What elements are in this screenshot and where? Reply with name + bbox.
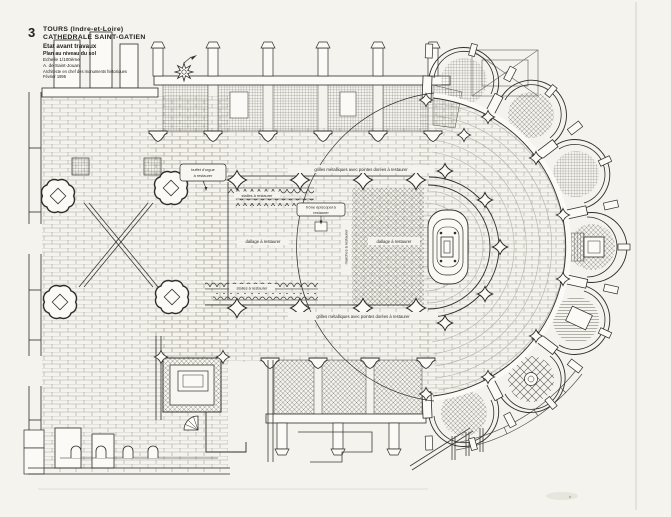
chapel-altar (340, 92, 356, 116)
crossing-pier (42, 180, 75, 213)
sanctuary-floor (352, 188, 424, 306)
axial-chapel-steps (570, 233, 584, 261)
north-chapel-bays (163, 85, 462, 131)
crossing-pier (156, 281, 189, 314)
floor-grating (72, 158, 89, 175)
title-line-monument: CATHEDRALE SAINT-GATIEN (43, 34, 146, 42)
label-paving-choir: dallage à restaurer (246, 239, 282, 244)
label-throne-line1: trône épiscopal à (306, 205, 336, 210)
high-altar (428, 210, 468, 284)
south-chapel-bays (274, 360, 422, 414)
tomb-chapel (155, 351, 230, 413)
label-steps: marches à restaurer (344, 229, 349, 265)
north-wall (154, 76, 450, 85)
axial-chapel-altar (584, 237, 604, 257)
title-line-date: Février 1995 (43, 74, 146, 79)
floor-grating (144, 158, 161, 175)
label-stalls-south: stalles à restaurer (237, 285, 269, 290)
figure-number: 3 (28, 25, 35, 40)
label-organ-line2: à restaurer (194, 173, 214, 178)
chapel-altar (230, 92, 248, 118)
label-throne-line2: restaurer (313, 210, 329, 215)
label-grilles-south: grilles métalliques avec pointes dorées … (316, 314, 410, 319)
title-line-commune: TOURS (Indre-et-Loire) (43, 26, 146, 34)
chapel-rosette (525, 373, 538, 386)
label-stalls-north: stalles à restaurer (242, 193, 274, 198)
title-block-lines: TOURS (Indre-et-Loire) CATHEDRALE SAINT-… (43, 26, 146, 79)
label-paving-sanctuary: dallage à restaurer (377, 239, 413, 244)
crossing-pier (44, 286, 77, 319)
south-wall (266, 414, 426, 423)
tomb (178, 371, 208, 391)
label-organ-line1: buffet d'orgue (191, 167, 215, 172)
title-line-state: Etat avant travaux (43, 43, 146, 51)
label-grilles-north: grilles métalliques avec pointes dorées … (314, 167, 408, 172)
